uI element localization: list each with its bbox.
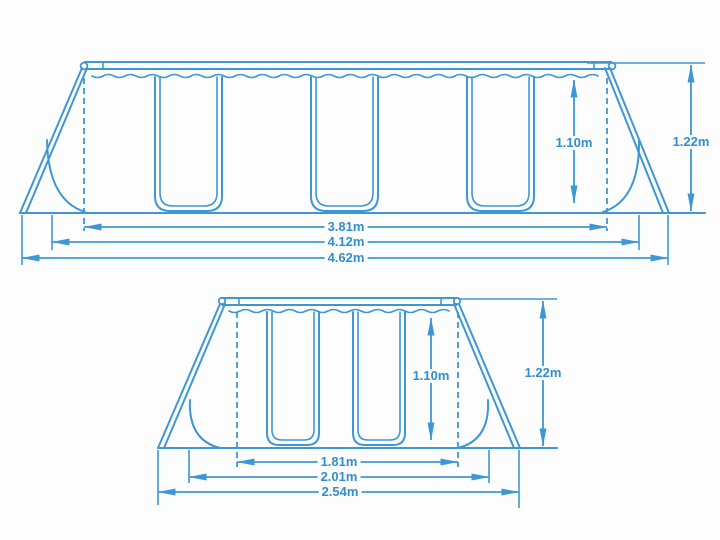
top-length-412-label: 4.12m bbox=[325, 235, 368, 249]
top-right-leg-inner bbox=[605, 68, 663, 213]
top-left-leg-inner bbox=[26, 68, 87, 213]
top-rail-bar bbox=[85, 62, 611, 69]
channel-inner bbox=[272, 312, 314, 440]
bottom-width-201-label: 2.01m bbox=[318, 470, 361, 484]
channel-outer bbox=[311, 77, 378, 211]
top-length-462-label: 4.62m bbox=[325, 251, 368, 265]
bottom-rail-bar bbox=[223, 298, 456, 305]
channel-outer bbox=[155, 77, 222, 211]
bottom-left-leg-outer bbox=[158, 304, 220, 448]
bottom-left-leg bbox=[158, 304, 225, 448]
top-frame-channel-1 bbox=[155, 77, 222, 211]
channel-inner bbox=[472, 77, 529, 206]
bottom-water-line bbox=[229, 310, 449, 313]
bottom-frame-channel-1 bbox=[267, 312, 319, 445]
bottom-right-leg-outer bbox=[459, 304, 520, 448]
channel-outer bbox=[353, 312, 405, 445]
bottom-width-181-label: 1.81m bbox=[318, 455, 361, 469]
bottom-inner-height-label: 1.10m bbox=[410, 369, 453, 383]
top-left-leg bbox=[20, 68, 87, 213]
channel-outer bbox=[267, 312, 319, 445]
bottom-liner-right-corner bbox=[458, 400, 488, 448]
top-liner-right-corner bbox=[603, 140, 639, 212]
top-left-leg-outer bbox=[20, 68, 82, 213]
top-water-line bbox=[92, 75, 598, 78]
top-frame-channel-2 bbox=[311, 77, 378, 211]
top-outer-height-label: 1.22m bbox=[670, 135, 713, 149]
pool-dimensions-diagram: 1.10m 1.22m 3.81m 4.12m 4.62m 1.10m 1.22… bbox=[0, 0, 720, 540]
bottom-frame-channel-2 bbox=[353, 312, 405, 445]
channel-outer bbox=[467, 77, 534, 211]
top-frame-channel-3 bbox=[467, 77, 534, 211]
channel-inner bbox=[160, 77, 217, 206]
bottom-width-254-label: 2.54m bbox=[319, 485, 362, 499]
top-rail bbox=[81, 61, 616, 70]
bottom-outer-height-label: 1.22m bbox=[522, 366, 565, 380]
top-right-leg bbox=[605, 68, 669, 213]
bottom-right-leg bbox=[454, 304, 520, 448]
bottom-rail bbox=[219, 297, 460, 306]
top-length-381-label: 3.81m bbox=[325, 220, 368, 234]
channel-inner bbox=[358, 312, 400, 440]
top-inner-height-label: 1.10m bbox=[553, 136, 596, 150]
channel-inner bbox=[316, 77, 373, 206]
bottom-liner-left-corner bbox=[190, 400, 220, 448]
